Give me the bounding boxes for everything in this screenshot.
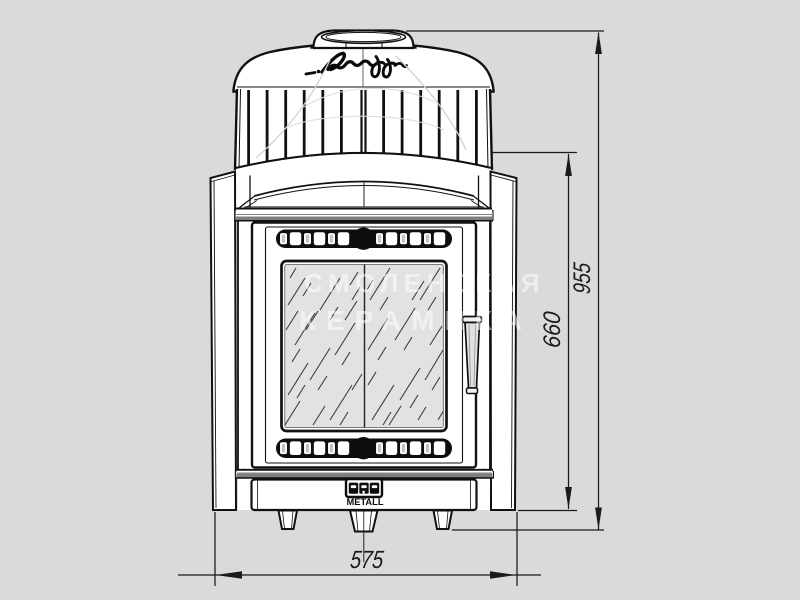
svg-text:660: 660	[539, 310, 566, 349]
svg-text:СМОЛЕНСКАЯ: СМОЛЕНСКАЯ	[304, 268, 545, 298]
svg-text:575: 575	[349, 546, 385, 574]
svg-text:METALL: METALL	[347, 497, 385, 507]
svg-text:КЕРАМИКА: КЕРАМИКА	[299, 305, 532, 336]
svg-text:955: 955	[569, 261, 596, 295]
